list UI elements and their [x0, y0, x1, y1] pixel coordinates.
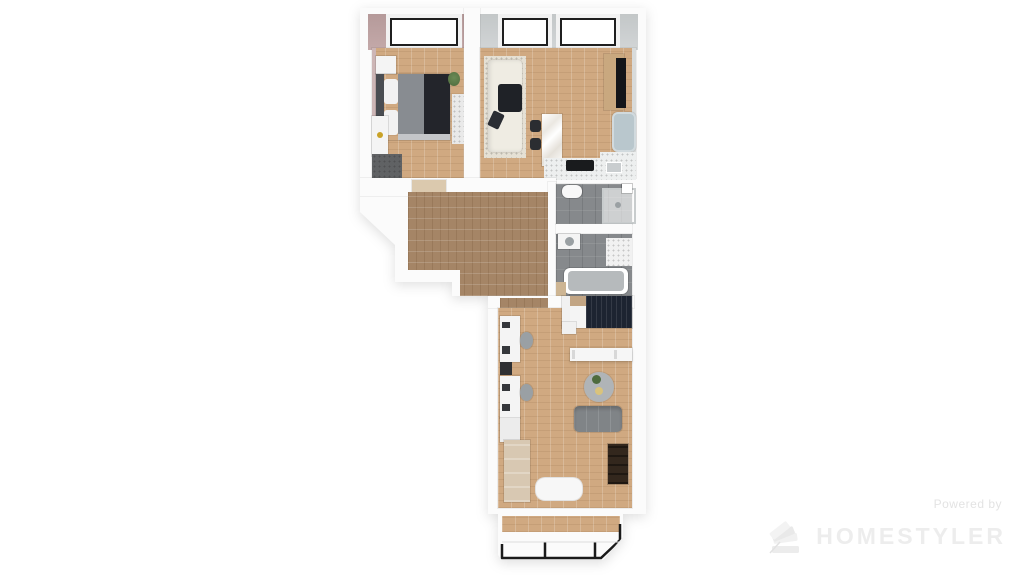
bath-mat — [556, 282, 566, 296]
bathtub — [564, 268, 628, 294]
bed-foot-bench — [398, 134, 450, 140]
floorplan-render — [360, 8, 646, 560]
kids-bed-throw — [570, 296, 586, 306]
kids-desk-1 — [500, 316, 520, 362]
bedroom-living-divider-wall — [464, 8, 480, 178]
balcony-glazing — [498, 514, 623, 560]
desk-leg — [572, 350, 575, 359]
bedroom-shelf — [452, 94, 464, 144]
living-window-1 — [502, 18, 548, 46]
kids-bookshelf — [608, 444, 628, 484]
powered-by-text: Powered by — [766, 497, 1006, 511]
bedroom-plant — [448, 72, 460, 86]
bathroom-1-sink — [622, 184, 632, 193]
kids-sofa — [574, 406, 622, 432]
kids-chair-2 — [520, 384, 533, 401]
desk-items — [502, 346, 510, 354]
kitchen-sink — [606, 162, 622, 173]
tv-screen — [616, 58, 626, 108]
desk-leg — [614, 350, 617, 359]
bedroom-window — [390, 18, 458, 46]
washer-drum — [565, 237, 574, 246]
homestyler-brand-text: HOMESTYLER — [816, 523, 1006, 550]
living-armchair — [612, 112, 636, 152]
bed-pillow — [384, 79, 398, 104]
floorplan-canvas: Powered by HOMESTYLER — [0, 0, 1024, 576]
homestyler-watermark: Powered by HOMESTYLER — [766, 497, 1006, 556]
washing-machine — [558, 234, 580, 249]
kids-bed-duvet — [586, 296, 632, 328]
shower — [602, 188, 636, 224]
kids-chair-1 — [520, 332, 533, 349]
bed-duvet-gray — [398, 74, 424, 140]
bar-stool — [530, 120, 541, 132]
desk-items — [502, 322, 510, 328]
bedroom-dresser — [372, 116, 388, 156]
kids-room-doorway — [500, 298, 548, 308]
kids-bench — [536, 478, 582, 500]
bar-stool — [530, 138, 541, 150]
bedroom-nightstand — [376, 56, 396, 74]
shower-drain — [615, 202, 621, 208]
kids-cabinet-beige — [504, 440, 530, 502]
bedroom-wardrobe — [372, 154, 402, 180]
hallway-floor — [408, 192, 556, 296]
bathroom-divider-wall — [556, 224, 632, 234]
sofa-cushion-dark — [487, 110, 505, 130]
rug-toy — [595, 387, 603, 395]
desk-items — [502, 404, 510, 411]
desk-items — [502, 384, 510, 391]
kids-wardrobe — [500, 418, 520, 442]
bathtub-basin — [568, 271, 624, 291]
cooktop — [566, 160, 594, 171]
hall-bathroom-wall — [548, 182, 556, 296]
toilet — [562, 185, 582, 198]
bed-duvet-dark — [424, 74, 450, 140]
kids-wall-desk — [570, 348, 632, 361]
building-outline — [360, 8, 646, 560]
living-window-2 — [560, 18, 616, 46]
pc-tower — [500, 362, 512, 375]
gold-lamp — [377, 132, 383, 138]
bathroom-2-vanity — [606, 238, 632, 266]
rug-plant — [592, 375, 601, 384]
kids-desk-2 — [500, 376, 520, 418]
homestyler-fan-logo-icon — [766, 516, 806, 556]
sofa-throw-dark — [498, 84, 522, 112]
bedroom-door — [412, 180, 446, 194]
living-sofa — [488, 60, 522, 152]
kids-nightstand — [562, 322, 576, 334]
kids-round-rug — [584, 372, 614, 402]
